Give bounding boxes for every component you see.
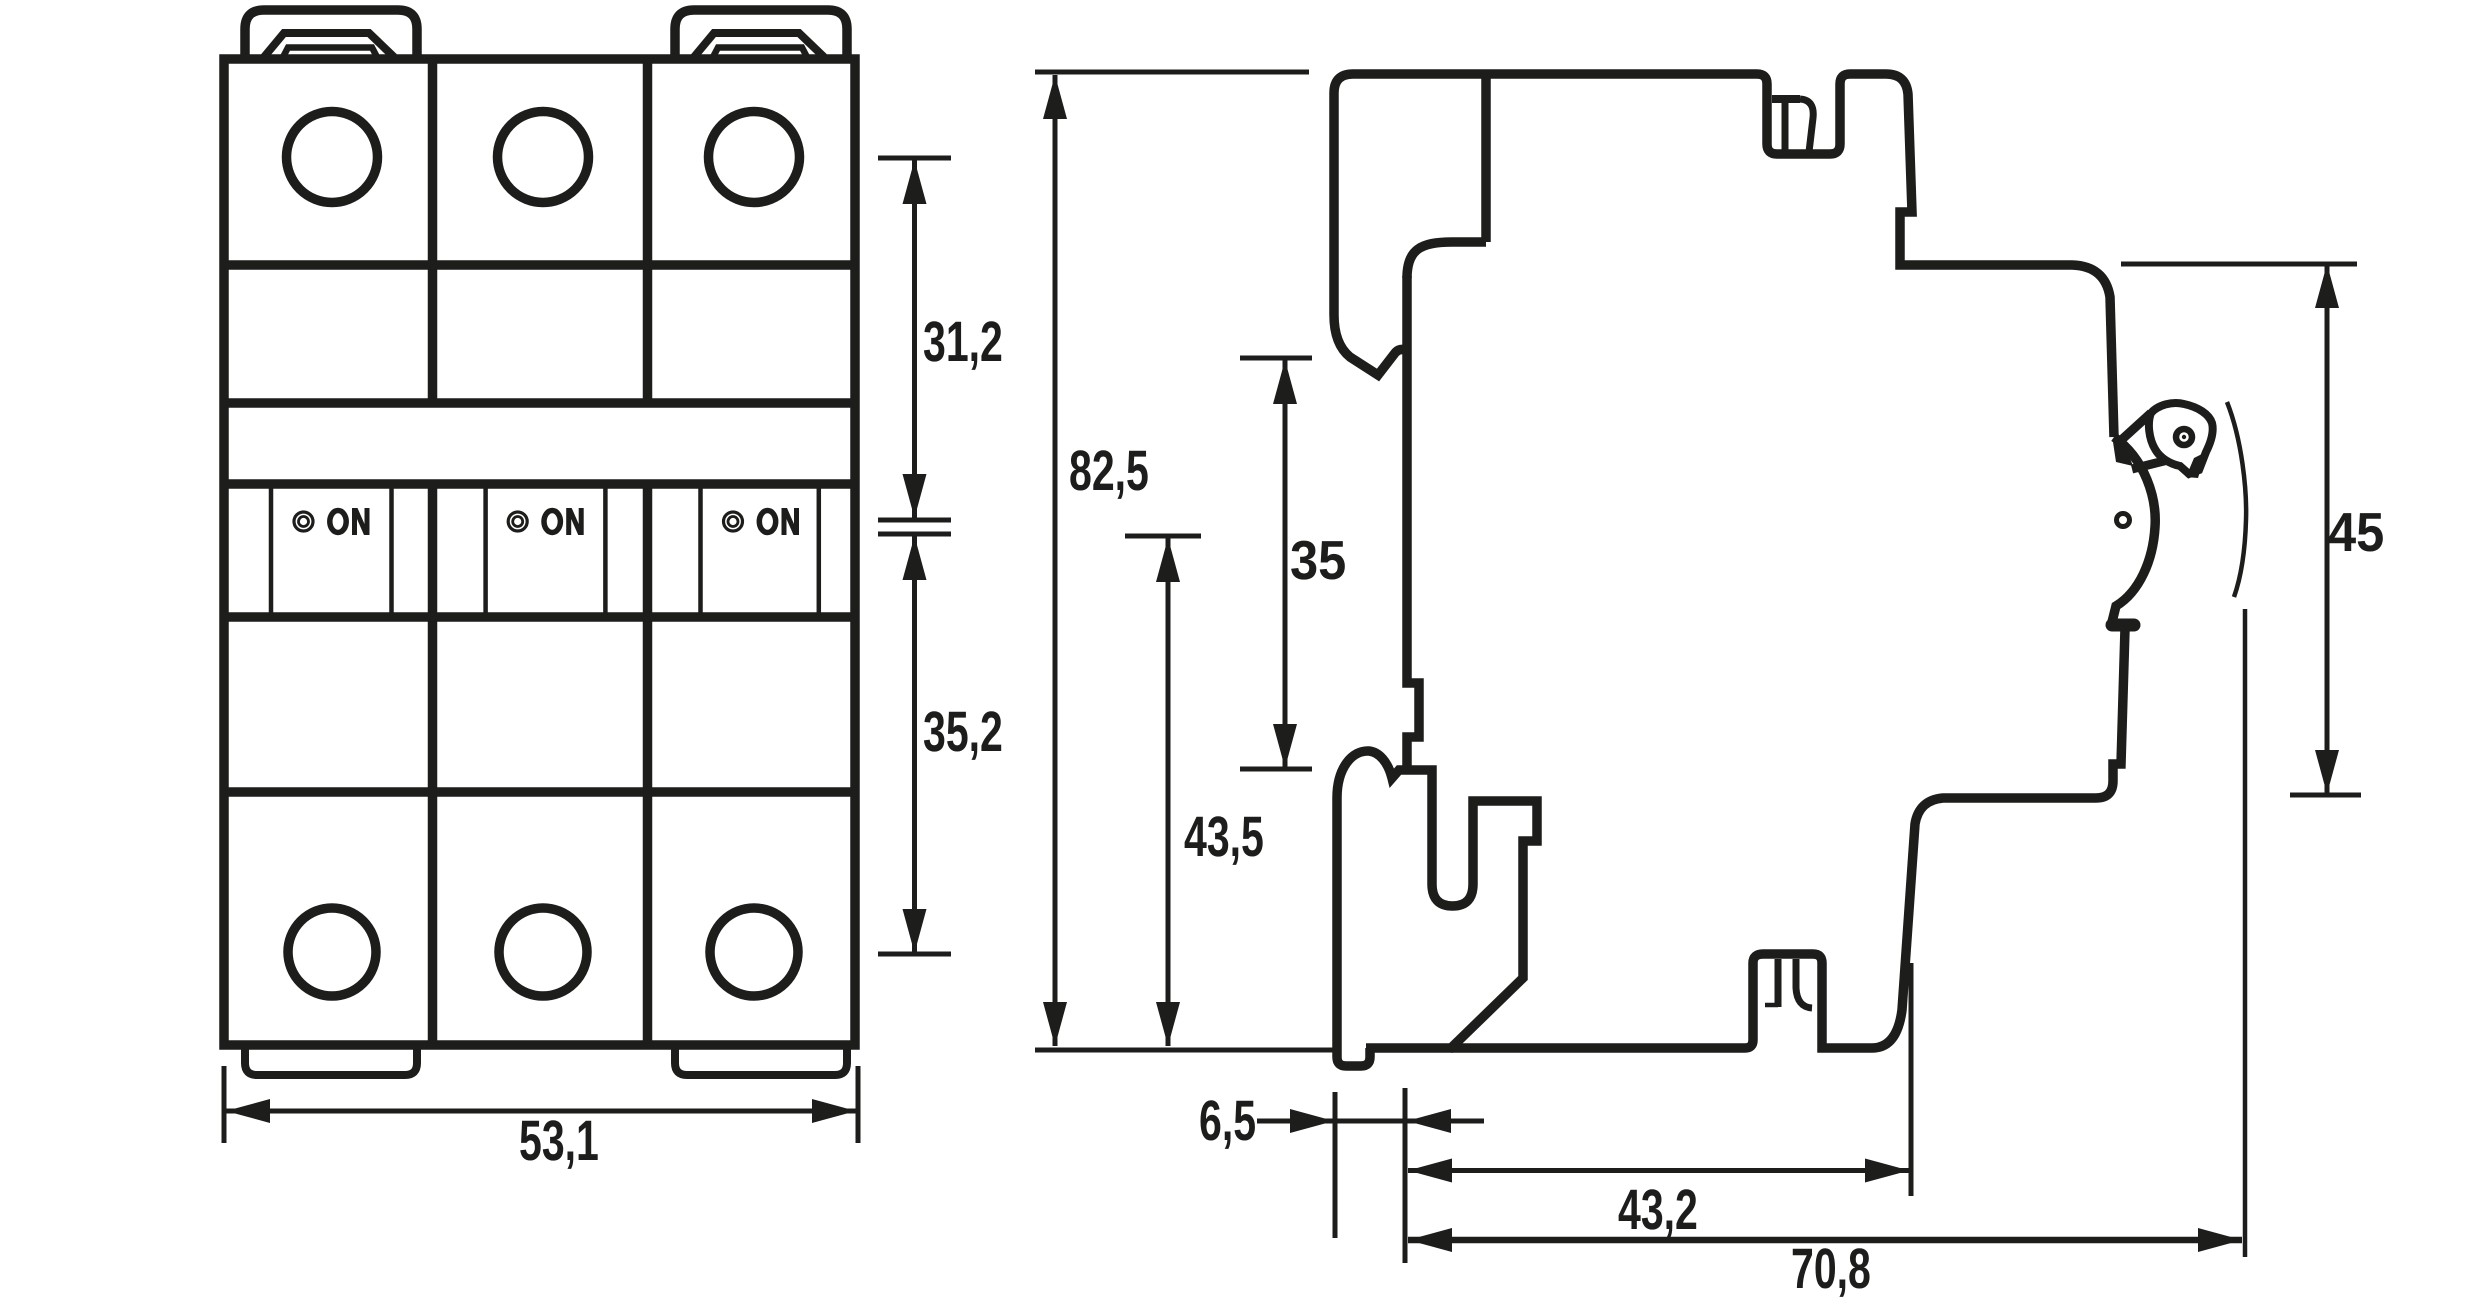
svg-text:82,5: 82,5 [1069,439,1149,503]
svg-text:35: 35 [1290,529,1346,591]
svg-text:45: 45 [2328,501,2384,563]
svg-text:43,2: 43,2 [1618,1178,1698,1242]
svg-text:6,5: 6,5 [1199,1089,1256,1153]
svg-text:35,2: 35,2 [923,700,1003,764]
svg-text:53,1: 53,1 [519,1109,599,1173]
svg-text:70,8: 70,8 [1791,1237,1871,1299]
svg-text:43,5: 43,5 [1184,805,1264,869]
svg-text:31,2: 31,2 [923,310,1003,374]
